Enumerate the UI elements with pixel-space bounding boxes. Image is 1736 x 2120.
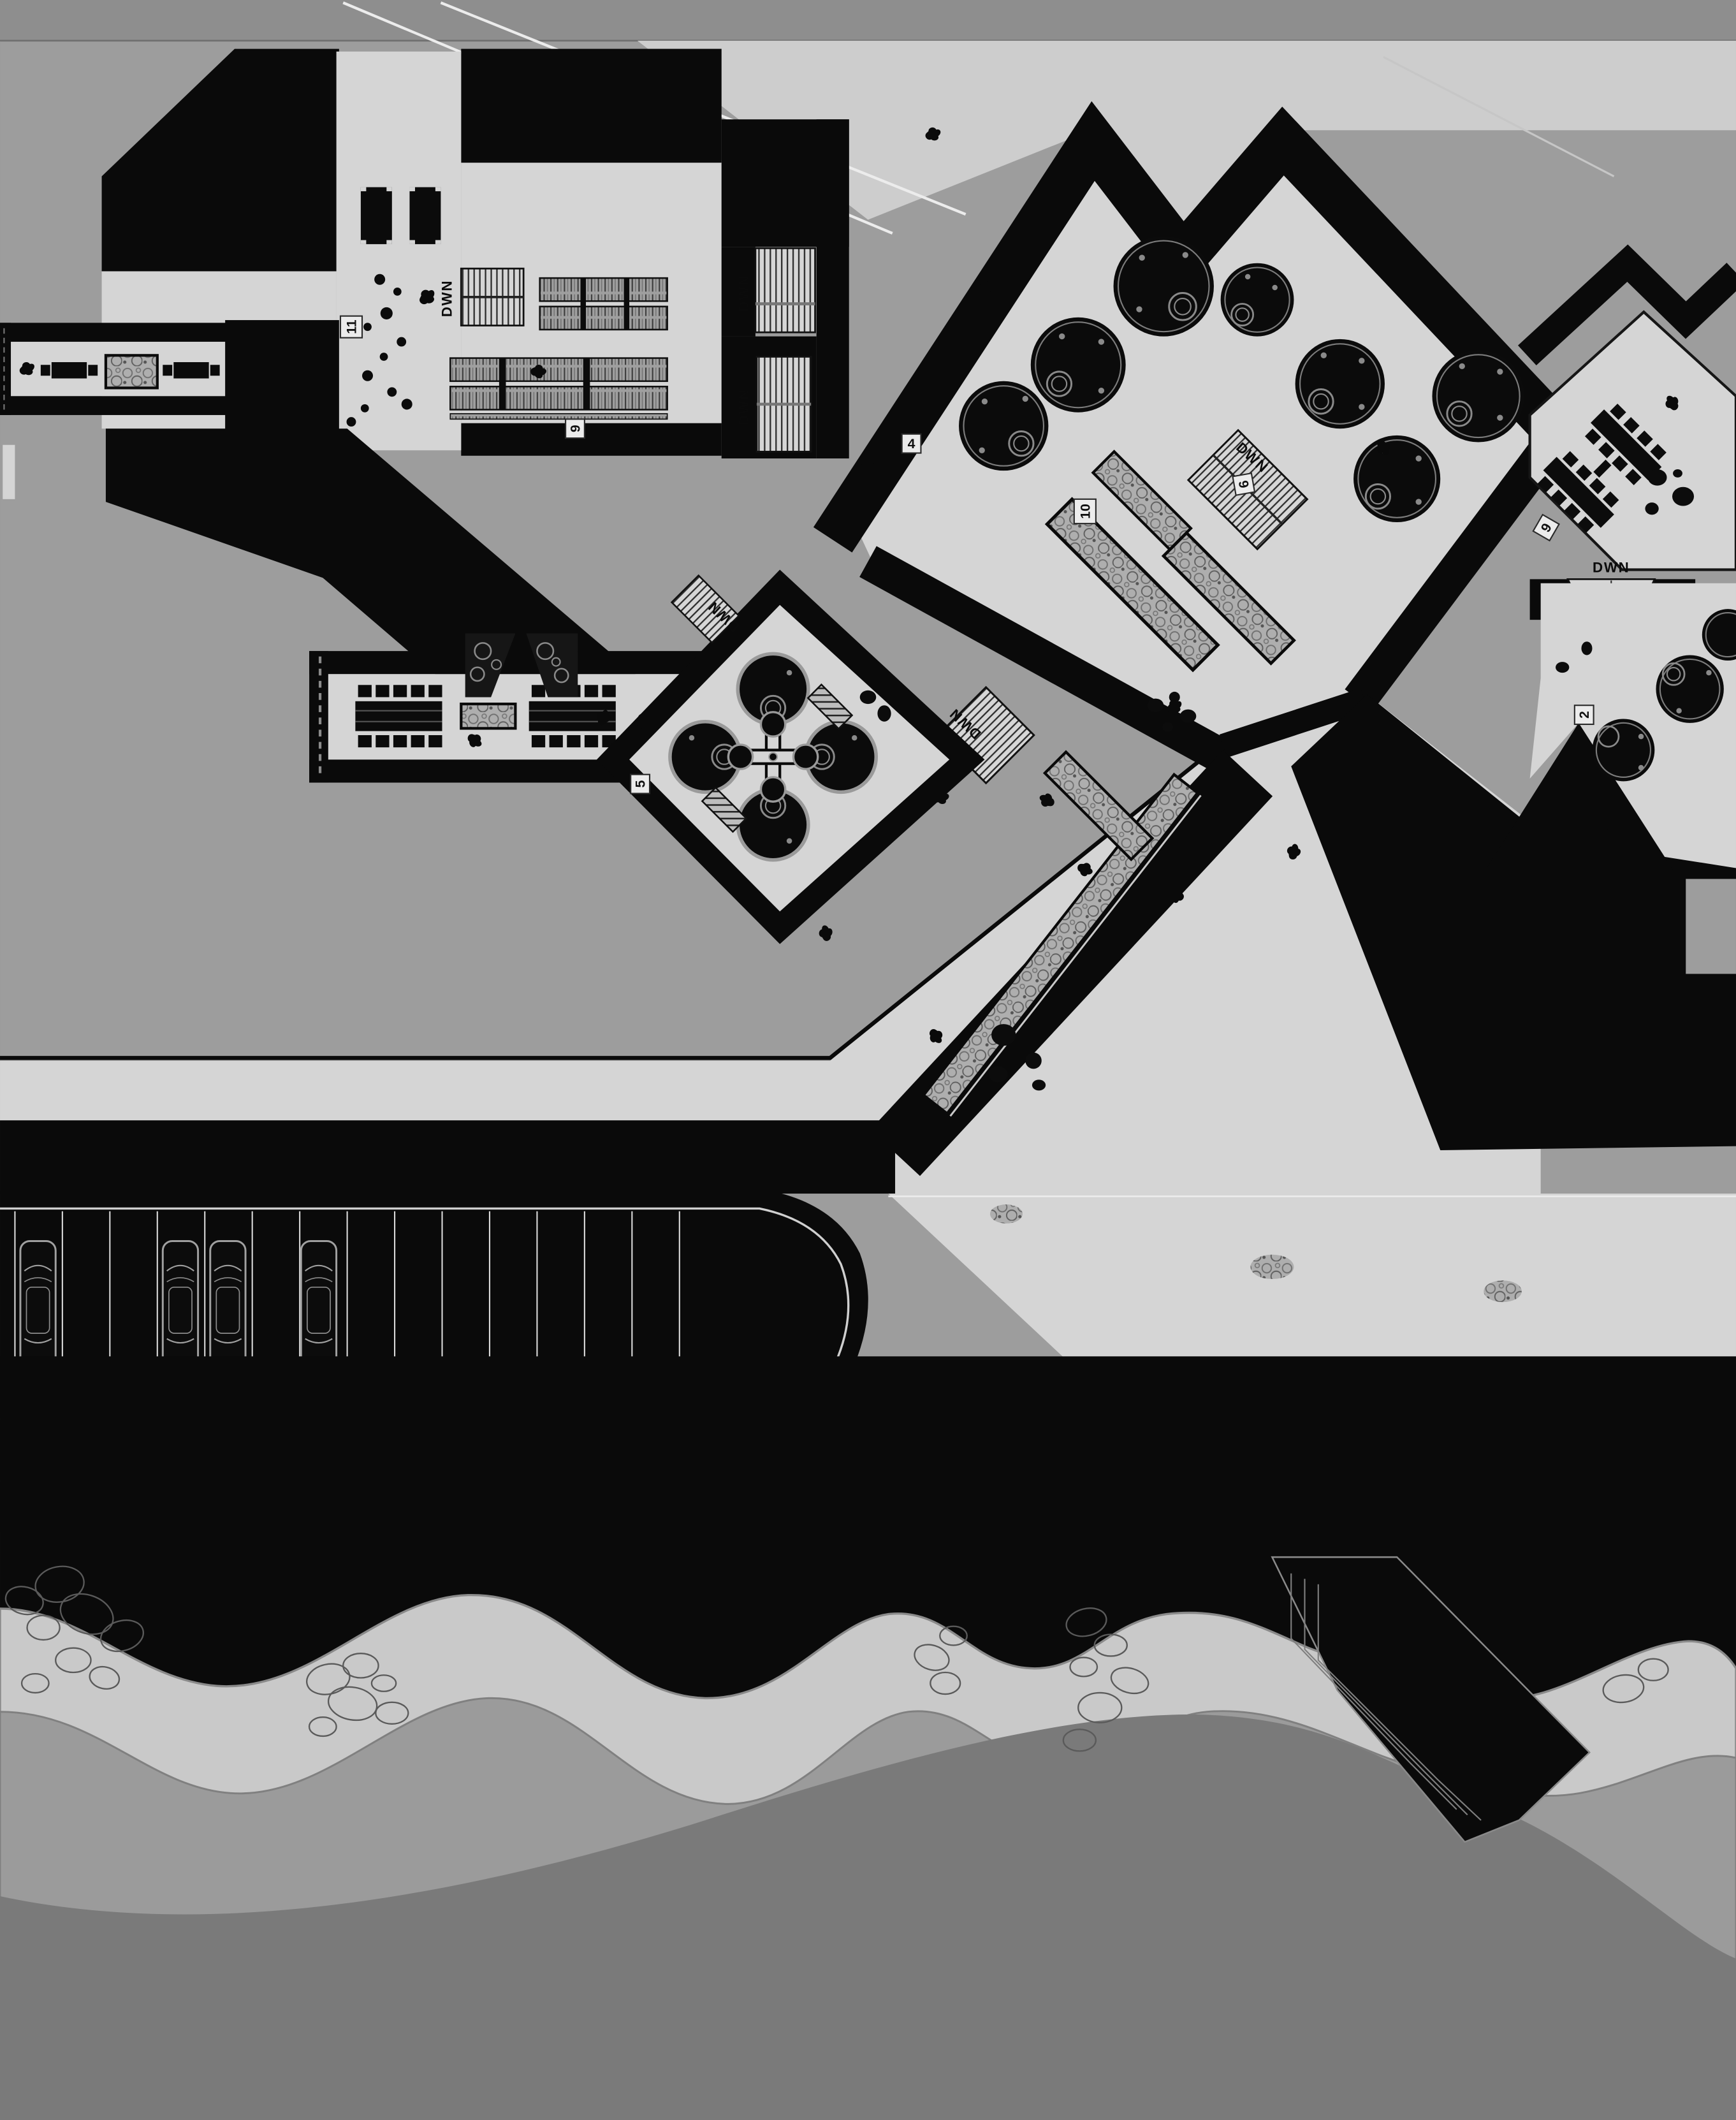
- unit-number: 11: [344, 319, 359, 334]
- unit-number: 10: [1077, 504, 1093, 519]
- round-pool: [1295, 339, 1385, 428]
- unit-number: 5: [633, 780, 648, 788]
- beach-and-sea: [0, 1356, 1736, 2120]
- building-mass: [461, 49, 721, 163]
- round-pool: [1031, 318, 1126, 413]
- site-plan-canvas: DWN DWN DWN DWN DWN DWN DWN 11 9 6 4 10 …: [0, 0, 1736, 2120]
- hall-floor: [337, 52, 462, 450]
- parked-car: [20, 1241, 55, 1366]
- parked-car: [301, 1241, 336, 1366]
- billiard-table: [409, 187, 441, 244]
- unit-tag: 6: [1233, 473, 1255, 495]
- stair-label: DWN: [439, 280, 455, 317]
- stair-label: DWN: [1593, 560, 1630, 576]
- unit-tag: 4: [902, 434, 921, 453]
- unit-tag: 9: [565, 419, 585, 438]
- round-pool: [1221, 263, 1294, 337]
- veg-clump: [1484, 1280, 1522, 1302]
- round-pool: [1353, 435, 1440, 522]
- parked-car: [163, 1241, 198, 1366]
- site-plan-drawing: DWN DWN DWN DWN DWN DWN DWN 11 9 6 4 10 …: [0, 0, 1736, 2120]
- building-mass: [817, 119, 849, 458]
- round-pool: [1432, 350, 1524, 442]
- round-pool: [1592, 719, 1654, 781]
- long-dining-table: [355, 685, 442, 747]
- unit-tag: 11: [340, 316, 362, 338]
- unit-tag: 5: [631, 775, 650, 794]
- unit-number: 9: [567, 425, 583, 432]
- parked-car: [210, 1241, 245, 1366]
- unit-number: 2: [1577, 711, 1592, 719]
- round-pool: [959, 381, 1048, 471]
- dining-planter: [461, 704, 515, 728]
- top-road-band: [0, 0, 1736, 41]
- stair-label: DWN: [736, 274, 752, 311]
- stair-flight: [755, 248, 815, 332]
- round-pool: [1656, 655, 1723, 722]
- veg-clump: [1250, 1255, 1294, 1279]
- billiard-table: [361, 187, 392, 244]
- building-mass: [461, 423, 721, 456]
- stair-flight: [757, 356, 811, 451]
- stair-label: DWN: [736, 388, 752, 425]
- seafront-wall-band: [0, 1120, 895, 1194]
- ground-notch: [1686, 879, 1736, 974]
- wall-opening: [3, 445, 15, 499]
- unit-tag: 2: [1575, 705, 1594, 724]
- round-pool: [1114, 236, 1214, 336]
- unit-number: 4: [908, 436, 915, 451]
- stair-flight: [461, 268, 523, 325]
- veg-clump: [990, 1204, 1023, 1224]
- corridor-planter: [106, 355, 157, 388]
- unit-tag: 10: [1074, 499, 1096, 523]
